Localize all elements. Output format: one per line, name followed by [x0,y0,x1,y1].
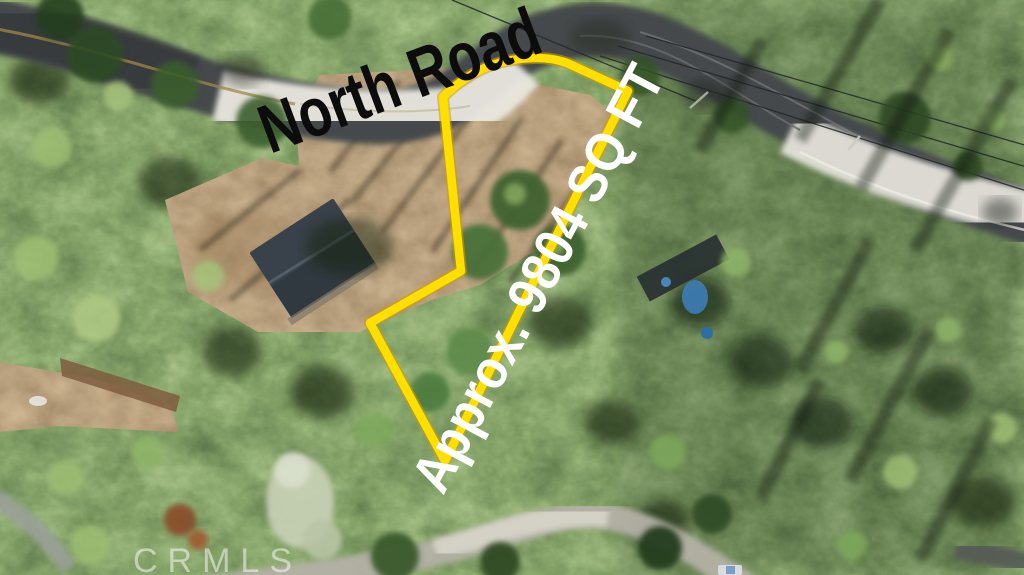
blue-object [701,327,713,339]
crmls-watermark: CRMLS [133,544,302,575]
blue-object [661,277,671,287]
red-tree [164,504,196,536]
aerial-photo: North Road Approx. 9804 SQ FT CRMLS [0,0,1024,575]
car-left-road [29,396,47,406]
blue-tarp [682,280,708,314]
